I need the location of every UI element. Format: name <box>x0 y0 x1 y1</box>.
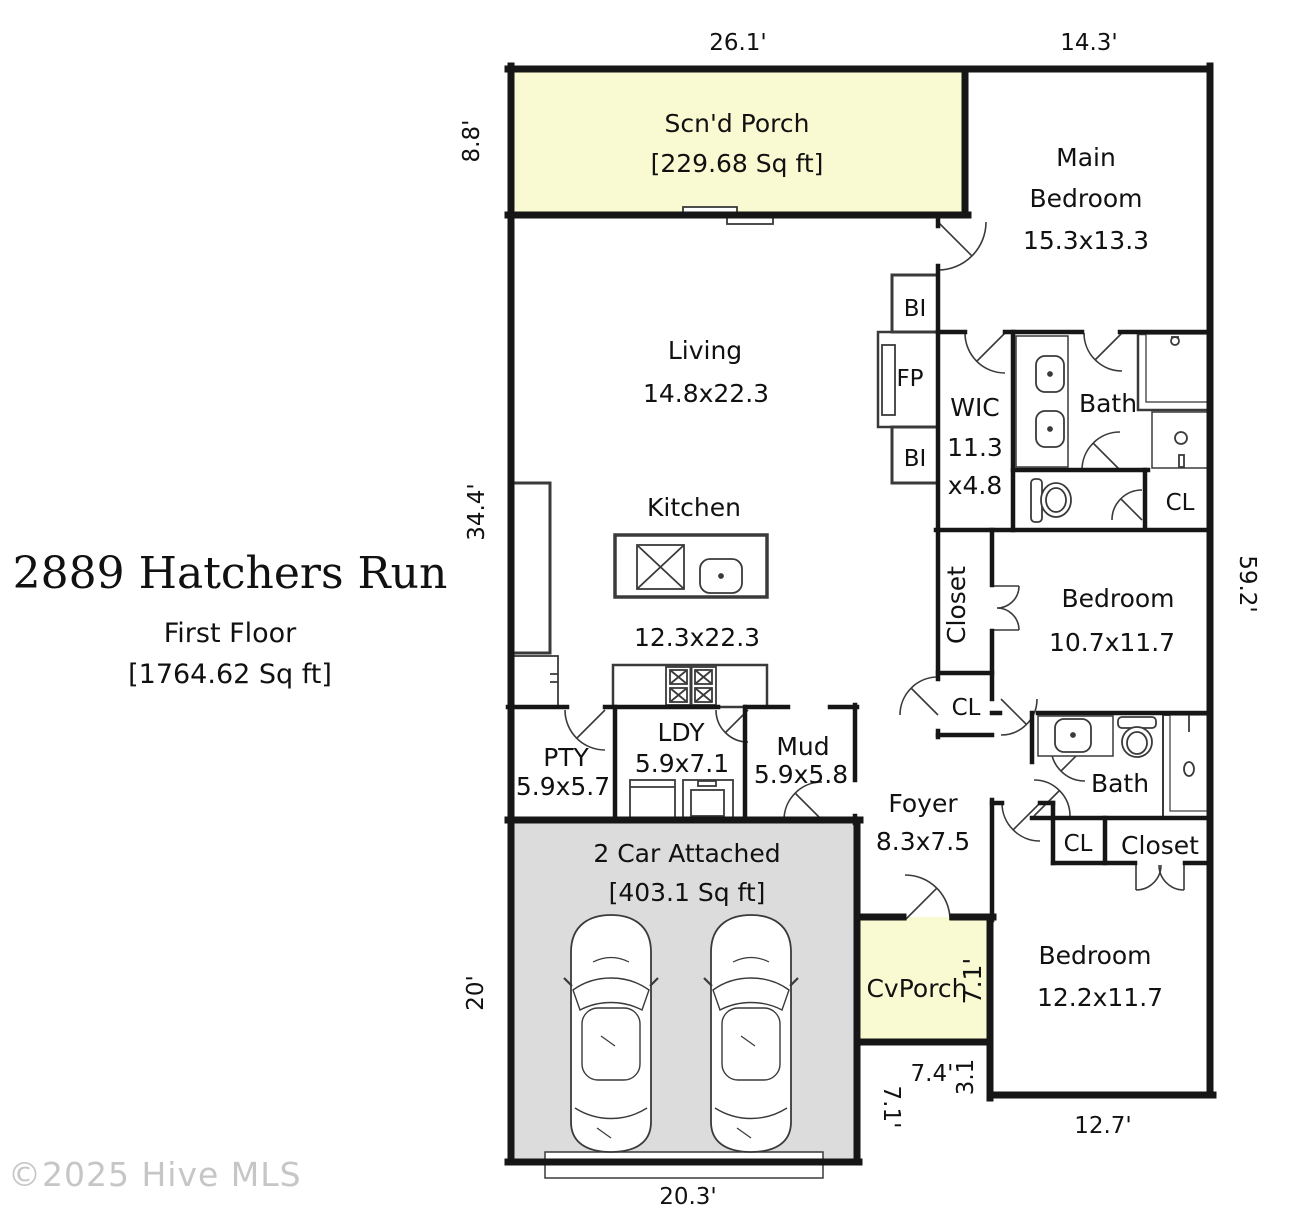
dim-nook-depth: 3.1 <box>953 1059 979 1096</box>
floorplan-page: 2889 Hatchers Run First Floor [1764.62 S… <box>0 0 1316 1230</box>
room-foyer: Foyer <box>888 789 958 818</box>
room-bedroom-2-dims: 12.2x11.7 <box>1037 983 1163 1012</box>
room-kitchen: Kitchen <box>647 493 741 522</box>
door-hall <box>900 677 938 715</box>
dim-bedroom-2-width: 12.7' <box>1074 1113 1132 1139</box>
door-closet-2-double <box>1136 865 1184 890</box>
floor-label: First Floor <box>164 618 297 649</box>
dim-garage-width: 20.3' <box>659 1184 717 1210</box>
room-foyer-dims: 8.3x7.5 <box>876 827 970 856</box>
room-bi-top: BI <box>904 296 927 322</box>
vanity-2-main-icon <box>1152 412 1210 468</box>
room-bedroom-1-dims: 10.7x11.7 <box>1049 628 1175 657</box>
door-wic <box>965 333 1005 373</box>
screened-porch-area <box>508 66 968 218</box>
dim-nook-width: 7.4' <box>911 1061 954 1087</box>
room-fp: FP <box>896 366 923 392</box>
toilet-2-icon <box>1118 717 1156 757</box>
door-front-entry <box>905 875 950 920</box>
room-closet-1: Closet <box>942 566 971 644</box>
vanity-main-icon <box>1016 336 1068 467</box>
car-right-icon <box>704 915 798 1152</box>
fridge-icon <box>512 656 558 706</box>
room-bath-main: Bath <box>1079 389 1137 418</box>
room-bedroom-1: Bedroom <box>1061 584 1174 613</box>
sink-icon <box>1175 432 1187 444</box>
room-cvporch: CvPorch <box>866 974 967 1003</box>
room-main-bedroom-2: Bedroom <box>1029 184 1142 213</box>
room-mud: Mud <box>776 732 829 761</box>
kitchen-counter-icon <box>613 665 767 707</box>
room-scnd-porch-area: [229.68 Sq ft] <box>651 149 824 178</box>
door-cl-main <box>1112 490 1142 520</box>
page-title: 2889 Hatchers Run <box>13 548 448 599</box>
door-bedroom-2 <box>1002 803 1040 841</box>
door-main-bedroom <box>938 222 986 270</box>
room-living-dims: 14.8x22.3 <box>643 379 769 408</box>
room-garage-area: [403.1 Sq ft] <box>609 878 766 907</box>
room-wic: WIC <box>950 393 1000 422</box>
dim-main-bedroom-width: 14.3' <box>1060 30 1118 56</box>
room-pty: PTY <box>543 743 589 772</box>
dim-garage-right-side: 7.1' <box>878 1086 904 1129</box>
room-cl-main: CL <box>1166 490 1195 516</box>
door-toilet-main <box>1082 432 1120 470</box>
room-pty-dims: 5.9x5.7 <box>516 772 610 801</box>
dryer-icon <box>683 780 733 820</box>
door-closet-1-double <box>994 586 1019 630</box>
island-sink-icon <box>700 559 742 593</box>
stove-icon <box>666 667 716 705</box>
room-main-bedroom-1: Main <box>1056 143 1116 172</box>
room-kitchen-dims: 12.3x22.3 <box>634 623 760 652</box>
toilet-main-icon <box>1031 479 1071 522</box>
room-scnd-porch: Scn'd Porch <box>665 109 810 138</box>
shower-main-icon <box>1138 334 1210 410</box>
room-wic-dims2: x4.8 <box>948 471 1003 500</box>
pantry-cabinet-icon <box>512 483 550 653</box>
room-wic-dims1: 11.3 <box>947 433 1003 462</box>
dim-garage-depth: 20' <box>463 975 489 1011</box>
room-main-bedroom-dims: 15.3x13.3 <box>1023 226 1149 255</box>
mls-watermark: ©2025 Hive MLS <box>8 1155 302 1194</box>
washer-icon <box>630 780 675 820</box>
dim-right-side: 59.2' <box>1234 555 1260 613</box>
shower-2-icon <box>1163 715 1210 818</box>
dim-porch-depth: 8.8' <box>459 120 485 163</box>
room-cl-2: CL <box>1064 831 1093 857</box>
garage-area <box>508 820 860 1165</box>
floor-area-label: [1764.62 Sq ft] <box>128 659 332 690</box>
room-bedroom-2: Bedroom <box>1038 941 1151 970</box>
room-ldy-dims: 5.9x7.1 <box>635 749 729 778</box>
room-ldy: LDY <box>657 718 705 747</box>
room-bi-bottom: BI <box>904 446 927 472</box>
room-cl-1: CL <box>952 695 981 721</box>
room-living: Living <box>668 336 742 365</box>
dim-living-side: 34.4' <box>464 483 490 541</box>
door-bath-main <box>1084 333 1122 371</box>
vanity-bath-2-icon <box>1038 716 1113 756</box>
room-cvporch-depth: 7.1' <box>958 958 987 1005</box>
floorplan-drawing: 2889 Hatchers Run First Floor [1764.62 S… <box>0 0 1316 1230</box>
kitchen-island-icon <box>615 535 767 597</box>
room-closet-2: Closet <box>1121 831 1199 860</box>
dim-porch-width: 26.1' <box>709 30 767 56</box>
car-left-icon <box>564 915 658 1152</box>
room-garage: 2 Car Attached <box>593 839 780 868</box>
room-mud-dims: 5.9x5.8 <box>754 760 848 789</box>
room-bath-2: Bath <box>1091 769 1149 798</box>
